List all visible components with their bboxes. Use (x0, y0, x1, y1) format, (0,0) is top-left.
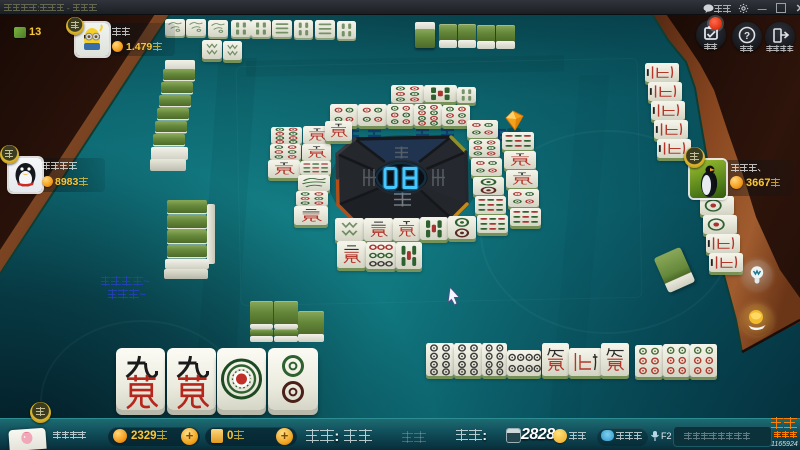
svg-text:?: ? (744, 31, 750, 42)
